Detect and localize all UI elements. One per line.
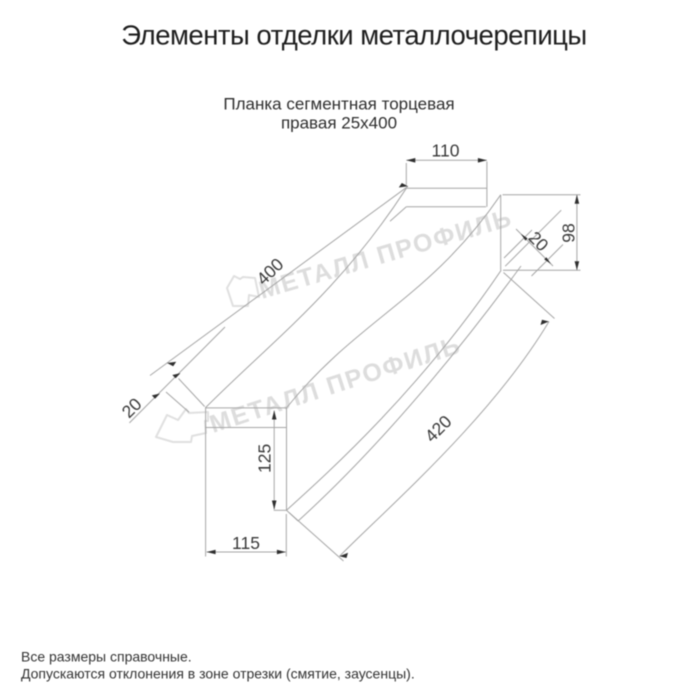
svg-text:правая 25х400: правая 25х400 (281, 114, 397, 133)
svg-text:Все размеры справочные.: Все размеры справочные. (21, 649, 192, 665)
svg-text:98: 98 (558, 223, 578, 242)
svg-text:Планка сегментная торцевая: Планка сегментная торцевая (223, 95, 454, 114)
svg-text:125: 125 (254, 444, 274, 473)
svg-text:110: 110 (432, 141, 460, 161)
svg-text:115: 115 (232, 533, 260, 553)
svg-text:Элементы отделки металлочерепи: Элементы отделки металлочерепицы (121, 20, 586, 51)
svg-text:Допускаются отклонения в зоне: Допускаются отклонения в зоне отрезки (с… (21, 666, 415, 682)
